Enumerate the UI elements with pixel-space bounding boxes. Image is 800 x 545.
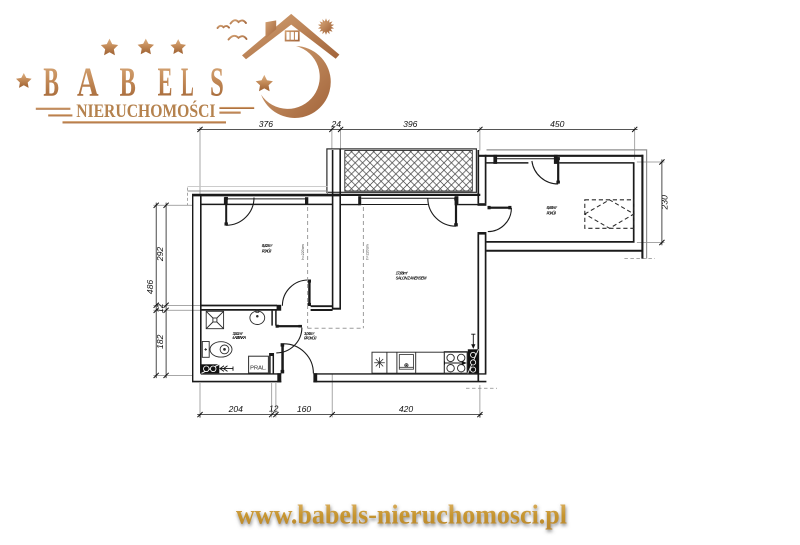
svg-text:POKÓJ: POKÓJ	[262, 248, 272, 253]
svg-text:E: E	[158, 59, 173, 105]
svg-text:230: 230	[659, 195, 669, 211]
svg-text:204: 204	[228, 404, 244, 414]
svg-text:8,68m²: 8,68m²	[547, 205, 558, 210]
svg-text:17,68m²: 17,68m²	[396, 270, 409, 275]
svg-text:L: L	[181, 59, 194, 105]
svg-text:S: S	[210, 59, 224, 105]
svg-text:420: 420	[399, 404, 414, 414]
svg-text:450: 450	[550, 119, 565, 129]
svg-text:h=220cm: h=220cm	[365, 244, 369, 259]
svg-text:24: 24	[331, 119, 342, 129]
svg-text:182: 182	[155, 334, 165, 349]
svg-text:486: 486	[145, 280, 155, 295]
svg-text:292: 292	[155, 247, 165, 263]
svg-text:12: 12	[269, 403, 279, 413]
svg-text:B: B	[43, 59, 59, 105]
svg-text:PRAL.: PRAL.	[250, 365, 267, 371]
svg-text:SALON Z ANEKSEM: SALON Z ANEKSEM	[396, 276, 427, 281]
svg-text:P.POKÓJ: P.POKÓJ	[304, 335, 317, 340]
svg-text:ŁAZIENKA: ŁAZIENKA	[232, 335, 247, 340]
svg-text:B: B	[120, 59, 136, 105]
svg-text:160: 160	[297, 404, 312, 414]
svg-text:8,82m²: 8,82m²	[262, 243, 273, 248]
svg-text:POKÓJ: POKÓJ	[547, 210, 557, 215]
svg-text:A: A	[77, 59, 99, 105]
svg-text:12: 12	[155, 303, 165, 313]
svg-text:396: 396	[403, 119, 418, 129]
svg-text:www.babels-nieruchomosci.pl: www.babels-nieruchomosci.pl	[236, 498, 567, 529]
svg-text:376: 376	[259, 119, 274, 129]
svg-text:NIERUCHOMOŚCI: NIERUCHOMOŚCI	[76, 100, 215, 122]
svg-text:h=220cm: h=220cm	[301, 244, 305, 259]
